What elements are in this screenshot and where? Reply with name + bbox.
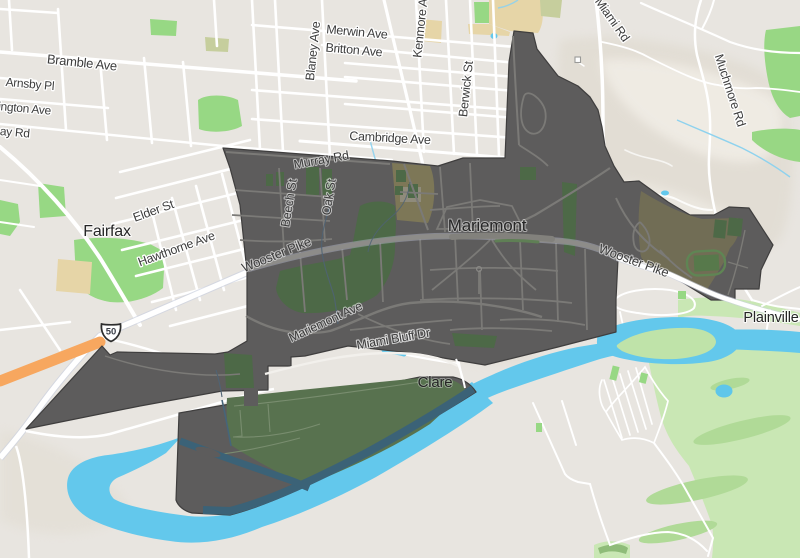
svg-text:50: 50 bbox=[106, 327, 117, 338]
svg-text:Plainville: Plainville bbox=[743, 310, 798, 326]
svg-text:Fairfax: Fairfax bbox=[83, 223, 131, 240]
svg-text:ay Rd: ay Rd bbox=[0, 124, 30, 141]
svg-text:Mariemont: Mariemont bbox=[448, 216, 527, 235]
svg-text:Clare: Clare bbox=[418, 374, 453, 391]
